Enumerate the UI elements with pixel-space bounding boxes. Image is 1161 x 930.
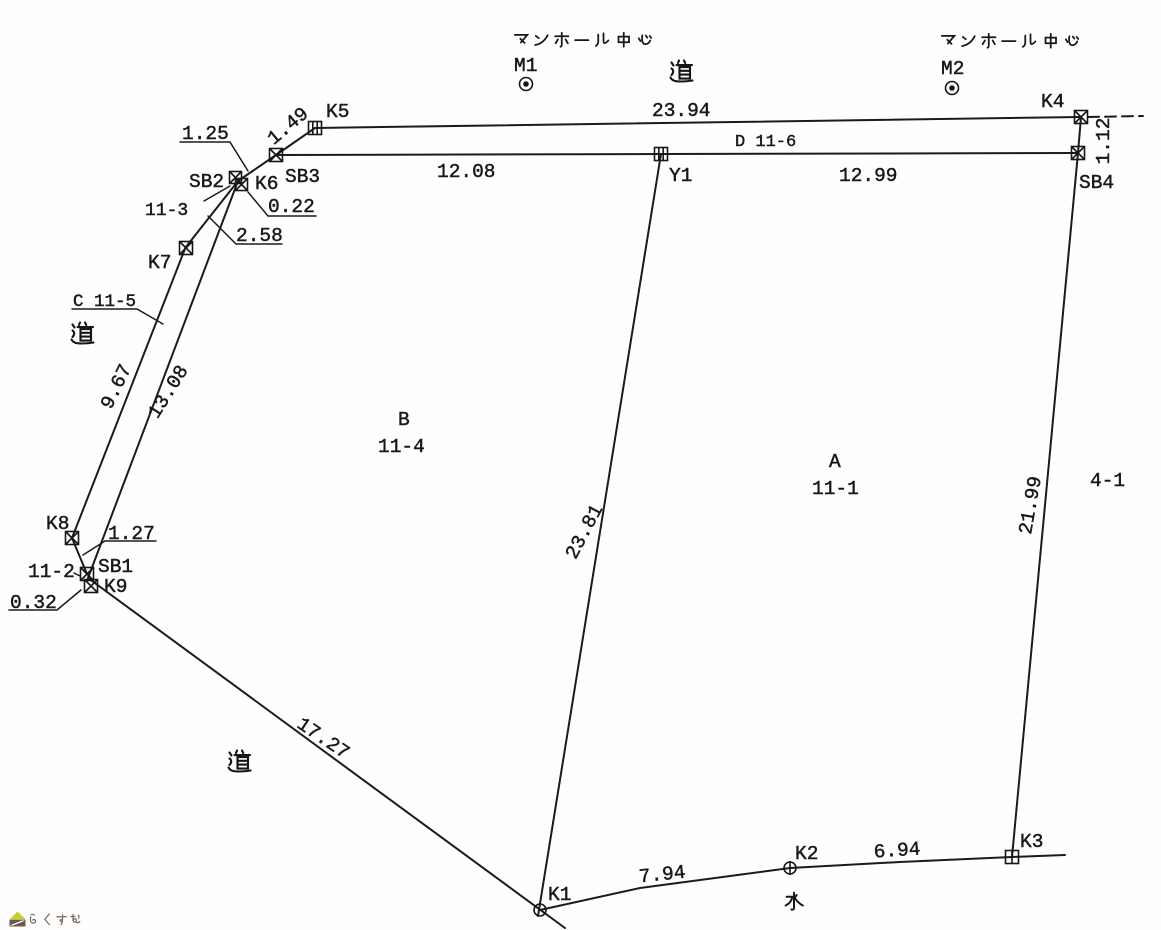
svg-text:23.81: 23.81 (561, 501, 608, 563)
svg-text:K4: K4 (1041, 91, 1064, 113)
svg-text:1.27: 1.27 (108, 523, 155, 545)
svg-text:0.22: 0.22 (268, 196, 315, 218)
svg-text:SB4: SB4 (1079, 172, 1114, 194)
svg-text:SB3: SB3 (285, 166, 320, 188)
svg-text:K8: K8 (46, 513, 69, 535)
svg-text:D 11-6: D 11-6 (735, 133, 796, 152)
svg-text:11-4: 11-4 (378, 436, 425, 458)
svg-text:13.08: 13.08 (144, 361, 194, 422)
svg-text:K6: K6 (255, 173, 278, 195)
svg-text:C 11-5: C 11-5 (73, 292, 136, 312)
svg-text:12.99: 12.99 (839, 165, 898, 187)
svg-text:1.25: 1.25 (182, 123, 229, 145)
svg-text:23.94: 23.94 (652, 100, 711, 122)
svg-text:K3: K3 (1020, 831, 1043, 853)
svg-text:2.58: 2.58 (236, 225, 283, 247)
svg-text:K9: K9 (104, 576, 127, 598)
svg-text:K1: K1 (548, 884, 571, 906)
svg-text:A: A (829, 451, 841, 473)
svg-text:4-1: 4-1 (1090, 470, 1125, 492)
svg-text:K5: K5 (326, 101, 349, 123)
svg-text:1.12: 1.12 (1093, 118, 1115, 165)
svg-text:7.94: 7.94 (638, 862, 687, 889)
svg-text:M2: M2 (941, 58, 964, 80)
svg-text:17.27: 17.27 (292, 713, 353, 764)
svg-text:0.32: 0.32 (10, 592, 57, 614)
svg-text:SB2: SB2 (189, 171, 224, 193)
svg-text:12.08: 12.08 (437, 161, 496, 183)
svg-text:11-1: 11-1 (812, 478, 859, 500)
svg-text:Y1: Y1 (669, 165, 692, 187)
svg-text:SB1: SB1 (98, 556, 133, 578)
svg-text:K7: K7 (148, 252, 171, 274)
svg-text:11-3: 11-3 (145, 201, 188, 221)
svg-text:6.94: 6.94 (873, 838, 921, 863)
svg-text:K2: K2 (795, 843, 818, 865)
svg-text:1.49: 1.49 (263, 103, 313, 150)
svg-text:B: B (398, 409, 410, 431)
svg-text:11-2: 11-2 (28, 561, 75, 583)
svg-text:M1: M1 (514, 55, 537, 77)
